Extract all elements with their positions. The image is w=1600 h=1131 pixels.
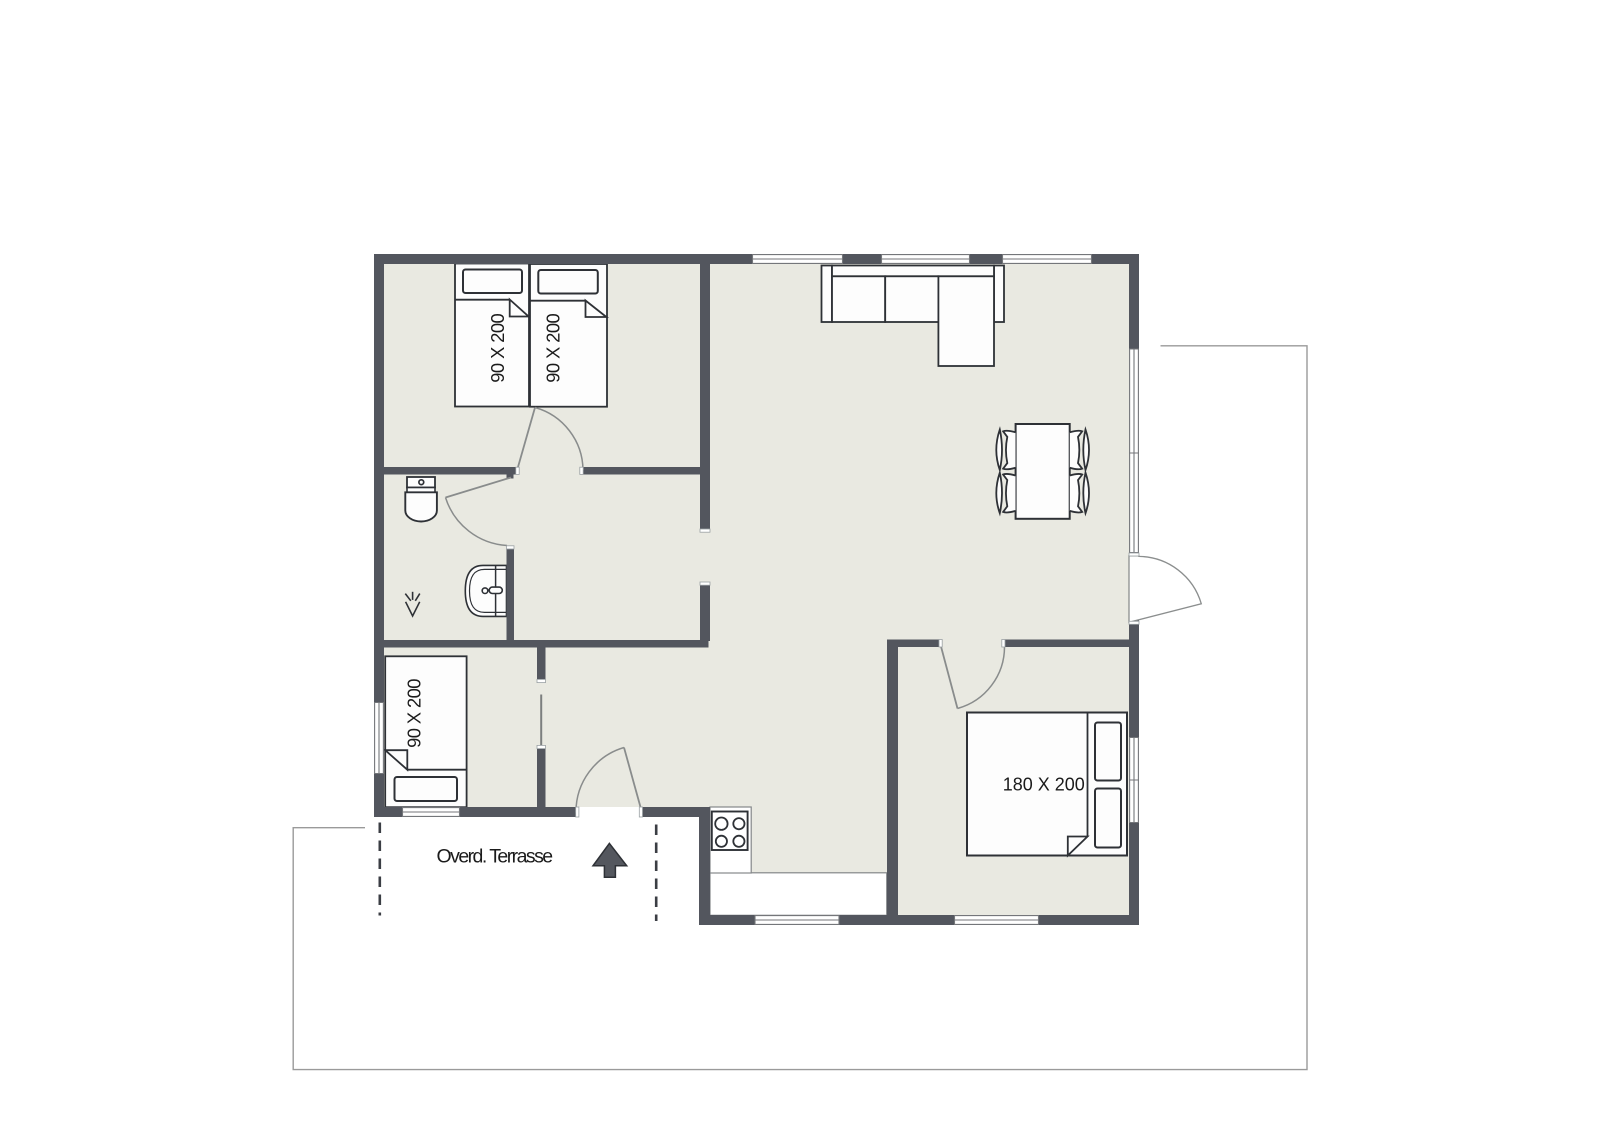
svg-text:90 X 200: 90 X 200 xyxy=(403,679,424,748)
svg-text:Overd. Terrasse: Overd. Terrasse xyxy=(437,846,553,868)
svg-text:90 X 200: 90 X 200 xyxy=(543,314,564,383)
svg-text:180 X 200: 180 X 200 xyxy=(1003,775,1085,795)
svg-text:90 X 200: 90 X 200 xyxy=(487,314,508,383)
